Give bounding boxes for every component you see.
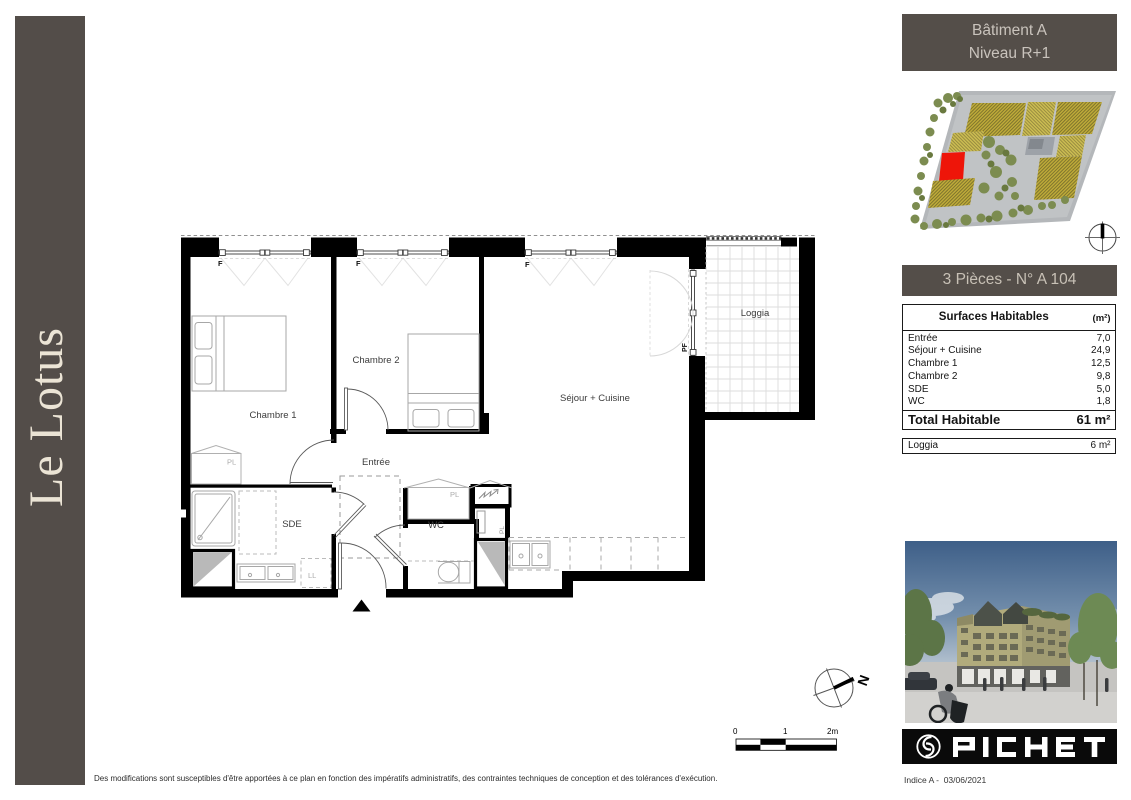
- svg-text:2m: 2m: [827, 727, 838, 736]
- svg-text:Chambre 1: Chambre 1: [250, 410, 297, 421]
- svg-text:LL: LL: [308, 571, 316, 580]
- svg-text:1: 1: [783, 727, 788, 736]
- svg-text:N: N: [854, 673, 872, 688]
- svg-text:0: 0: [733, 727, 738, 736]
- svg-text:SDE: SDE: [282, 519, 302, 530]
- svg-text:PL: PL: [499, 526, 506, 534]
- svg-text:Séjour + Cuisine: Séjour + Cuisine: [560, 393, 630, 404]
- svg-text:Chambre 2: Chambre 2: [353, 355, 400, 366]
- svg-text:WC: WC: [428, 520, 444, 531]
- svg-text:PL: PL: [450, 490, 459, 499]
- svg-text:Entrée: Entrée: [362, 457, 390, 468]
- svg-text:F: F: [525, 260, 530, 269]
- svg-text:Loggia: Loggia: [741, 308, 770, 319]
- svg-text:F: F: [356, 259, 361, 268]
- svg-text:PL: PL: [227, 458, 236, 467]
- svg-text:PF: PF: [682, 342, 689, 352]
- svg-text:F: F: [218, 259, 223, 268]
